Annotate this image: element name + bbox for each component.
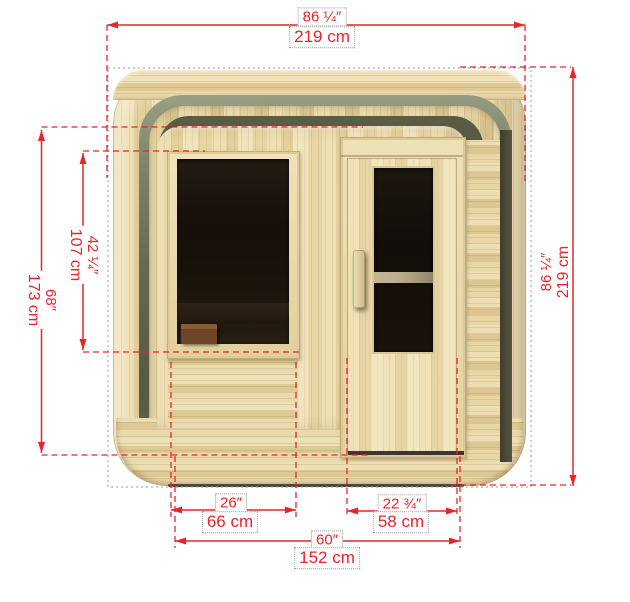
door-handle (353, 250, 365, 308)
dim-overall-width-inches: 86 ¼″ (298, 7, 347, 26)
dim-overall-height-label: 86 ¼″ 219 cm (537, 243, 575, 301)
dim-window-height-cm: 107 cm (65, 229, 83, 281)
sauna-dimension-diagram: 86 ¼″ 219 cm 86 ¼″ 219 cm 68″ 173 cm 42 … (0, 0, 630, 602)
right-shadow-strip (500, 130, 512, 462)
dim-wall-height-inches: 68″ (42, 274, 59, 326)
dim-wall-height-label: 68″ 173 cm (22, 271, 60, 329)
dim-overall-width-cm: 219 cm (289, 26, 355, 48)
dim-window-height-inches: 42 ¼″ (84, 229, 101, 281)
dim-overall-height-inches: 86 ¼″ (538, 246, 555, 298)
door-header-groove (341, 155, 463, 157)
dim-window-width-cm: 66 cm (202, 511, 258, 533)
dim-base-width-cm: 152 cm (294, 547, 360, 569)
dim-overall-height-cm: 219 cm (555, 246, 573, 298)
door-sill (348, 451, 464, 455)
under-window-panel (168, 359, 298, 429)
dim-wall-height-cm: 173 cm (23, 274, 41, 326)
dim-door-width-cm: 58 cm (373, 511, 429, 533)
right-side-panel (466, 140, 500, 460)
door-glass (374, 168, 433, 352)
ground-shadow (168, 484, 464, 487)
dim-window-height-label: 42 ¼″ 107 cm (64, 226, 102, 284)
door-glass-reflection (374, 272, 433, 283)
dim-window-width-inches: 26″ (215, 493, 247, 512)
interior-bench (181, 324, 217, 344)
window-interior-shadow (177, 303, 289, 323)
